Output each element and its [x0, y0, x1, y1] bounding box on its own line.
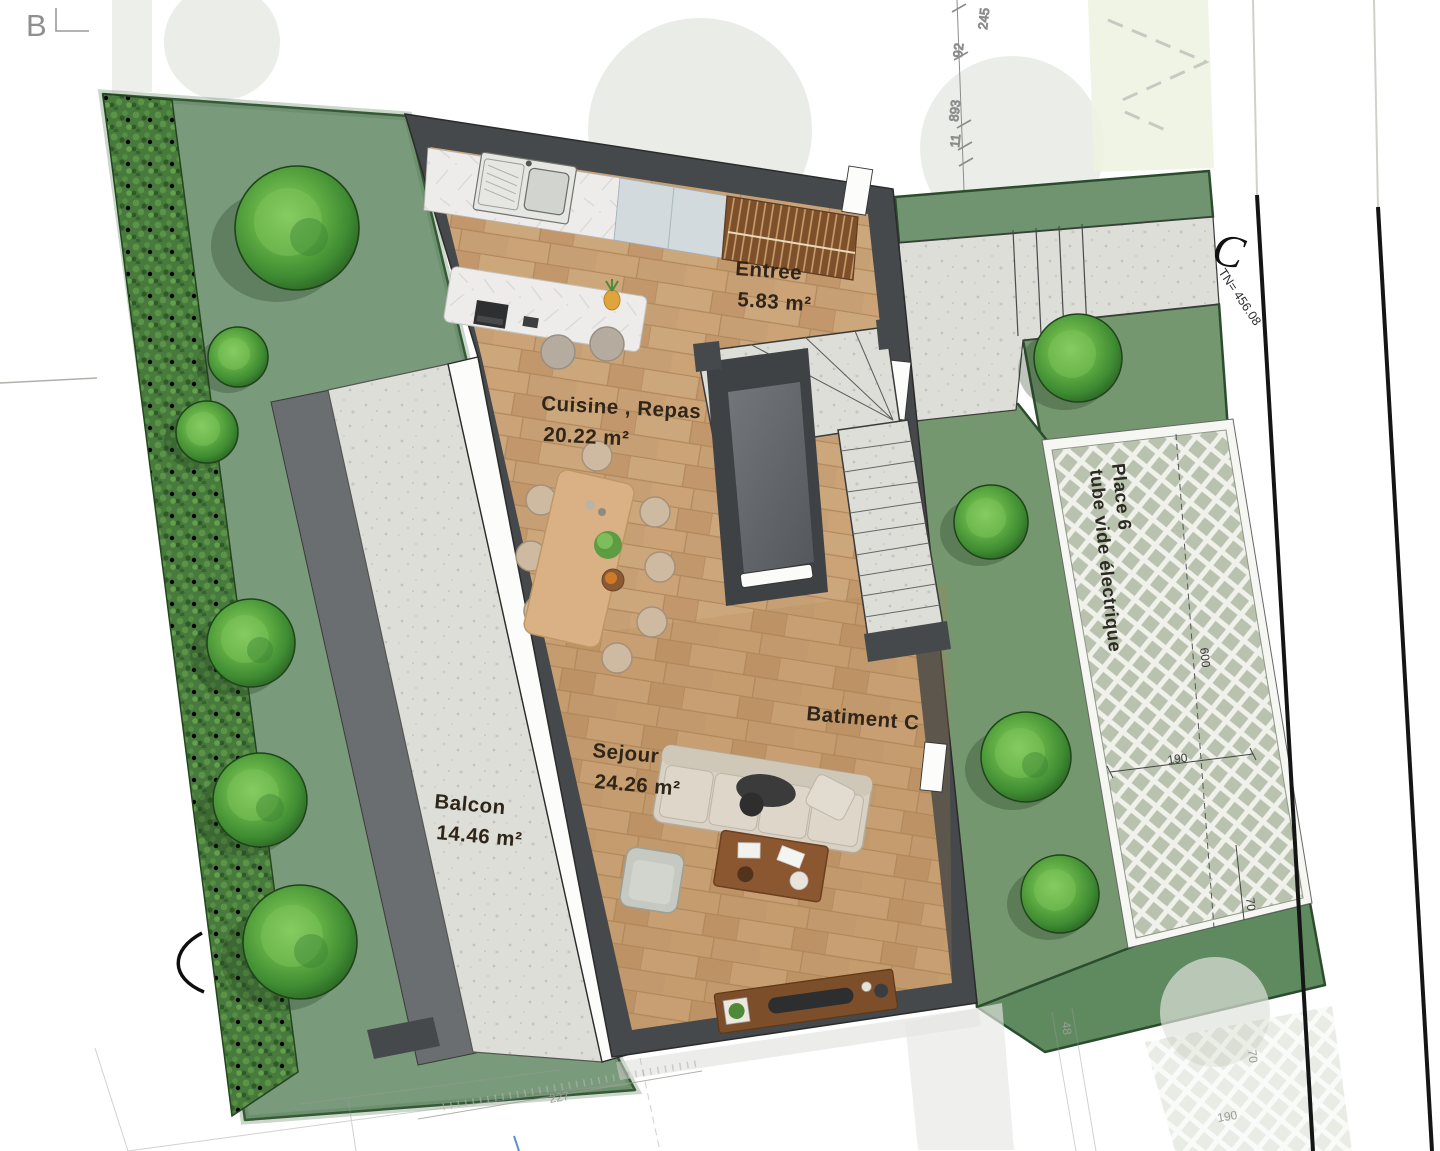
- ghost-slab: [905, 1003, 1014, 1150]
- dim-48: 48: [1059, 1021, 1074, 1036]
- label-cuisine-area: 20.22 m²: [543, 423, 630, 450]
- ghost-blue-mark: [514, 1136, 519, 1151]
- dim-190: 190: [1167, 751, 1189, 767]
- ghost-tree: [164, 0, 280, 100]
- table-decor: [598, 508, 606, 516]
- book: [738, 843, 760, 858]
- wall-stub: [693, 341, 722, 372]
- table-plant-highlight: [597, 533, 613, 549]
- dim-92: 92: [950, 42, 966, 58]
- tn-level-label: TN= 456.08: [1216, 266, 1264, 328]
- dim-70-ghost: 70: [1245, 1049, 1260, 1064]
- boundary-line-thin: [1253, 0, 1257, 195]
- ghost-boundary-left: [0, 378, 97, 383]
- bar-stool: [590, 327, 624, 361]
- dim-893: 893: [946, 99, 963, 122]
- east-window: [920, 742, 947, 792]
- dim-227: 227: [548, 1089, 570, 1106]
- boundary-arc-symbol: [178, 933, 204, 992]
- dim-245: 245: [975, 7, 992, 30]
- label-entree: Entree: [735, 257, 803, 285]
- bar-stool: [541, 335, 575, 369]
- laptop: [473, 300, 508, 329]
- dim-70: 70: [1243, 897, 1258, 912]
- armchair: [619, 846, 686, 914]
- marker-b: B: [26, 8, 47, 43]
- dim-11: 11: [947, 133, 963, 148]
- fruit: [605, 572, 617, 584]
- table-decor: [585, 500, 595, 510]
- boundary-line-thin: [1374, 0, 1378, 207]
- dim-600: 600: [1197, 647, 1213, 669]
- marker-b-line: [56, 8, 89, 31]
- boundary-line: [1378, 207, 1432, 1151]
- wall-stub: [876, 317, 905, 350]
- ghost-strip: [112, 0, 152, 92]
- site-plan-canvas: 245 92 893 11 600: [0, 0, 1440, 1151]
